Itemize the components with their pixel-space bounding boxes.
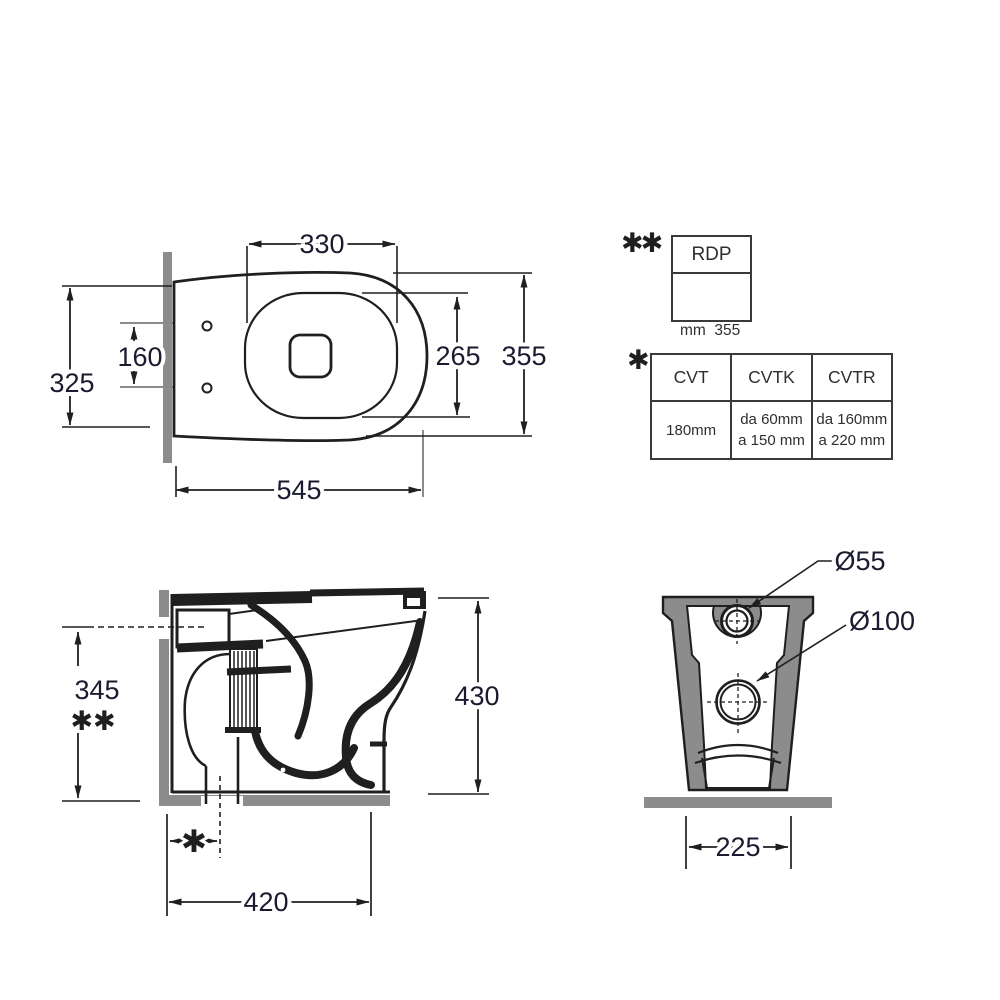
cvt-cell-line: a 150 mm <box>738 430 805 451</box>
cvt-header-cvtk: CVTK <box>732 355 810 402</box>
rim-end-hollow <box>407 598 420 606</box>
dim-text-star: ✱ <box>181 824 207 860</box>
dim-text-430: 430 <box>454 681 499 711</box>
fixing-hole-bottom <box>203 384 212 393</box>
cvt-column: CVT 180mm <box>652 355 732 458</box>
cvt-header-cvtr: CVTR <box>813 355 891 402</box>
label-outlet-diameter: Ø100 <box>849 606 915 636</box>
dim-text-325: 325 <box>49 368 94 398</box>
dim-text-160: 160 <box>117 342 162 372</box>
cvt-header-cvt: CVT <box>652 355 730 402</box>
rdp-table-row-1: mm 355 <box>680 321 750 342</box>
dim-text-330: 330 <box>299 229 344 259</box>
note-marker-double-star: ✱✱ <box>70 706 115 737</box>
cvt-cell-line: 180mm <box>666 420 716 441</box>
cvt-column: CVTK da 60mm a 150 mm <box>732 355 812 458</box>
rdp-table-header: RDP <box>673 237 750 274</box>
floor-section-rear <box>644 797 832 808</box>
connector-band <box>227 669 291 672</box>
outer-profile-right <box>384 611 425 791</box>
wall-section-plan <box>163 252 172 463</box>
dim-text-420: 420 <box>243 887 288 917</box>
cvt-cell-cvt: 180mm <box>652 402 730 458</box>
cvt-table: CVT 180mm CVTK da 60mm a 150 mm CVTR da … <box>650 353 893 460</box>
cvt-cell-line: da 60mm <box>740 409 803 430</box>
dim-text-345: 345 <box>74 675 119 705</box>
rim-section-left <box>172 597 312 600</box>
cvt-note-marker: ✱ <box>627 345 647 376</box>
rdp-table: RDP mm 355 o mm 325 <box>671 235 752 322</box>
drawing-svg: 330 545 325 160 265 355 <box>0 0 1000 1000</box>
inlet-shelf-section <box>177 644 263 648</box>
flush-outlet-plan <box>290 335 331 377</box>
rdp-note-marker: ✱✱ <box>621 228 660 259</box>
plan-view: 330 545 325 160 265 355 <box>49 229 546 505</box>
side-view: 345 ✱✱ 430 ✱ 420 <box>62 590 500 917</box>
cvt-column: CVTR da 160mm a 220 mm <box>813 355 891 458</box>
cvt-cell-cvtr: da 160mm a 220 mm <box>813 402 891 458</box>
cvt-cell-line: a 220 mm <box>818 430 885 451</box>
cvt-cell-cvtk: da 60mm a 150 mm <box>732 402 810 458</box>
trap-dot <box>281 768 286 773</box>
rear-view: Ø55 Ø100 225 <box>644 546 915 869</box>
dim-text-265: 265 <box>435 341 480 371</box>
technical-drawing-sheet: 330 545 325 160 265 355 <box>0 0 1000 1000</box>
floor-section-side <box>159 795 390 806</box>
fixing-hole-top <box>203 322 212 331</box>
wall-inlet-gap <box>159 617 169 639</box>
label-inlet-diameter: Ø55 <box>834 546 885 576</box>
dim-text-355: 355 <box>501 341 546 371</box>
cvt-cell-line: da 160mm <box>816 409 887 430</box>
dim-text-545: 545 <box>276 475 321 505</box>
dim-text-225: 225 <box>715 832 760 862</box>
outlet-elbow <box>185 654 230 766</box>
trap-section <box>255 731 354 775</box>
